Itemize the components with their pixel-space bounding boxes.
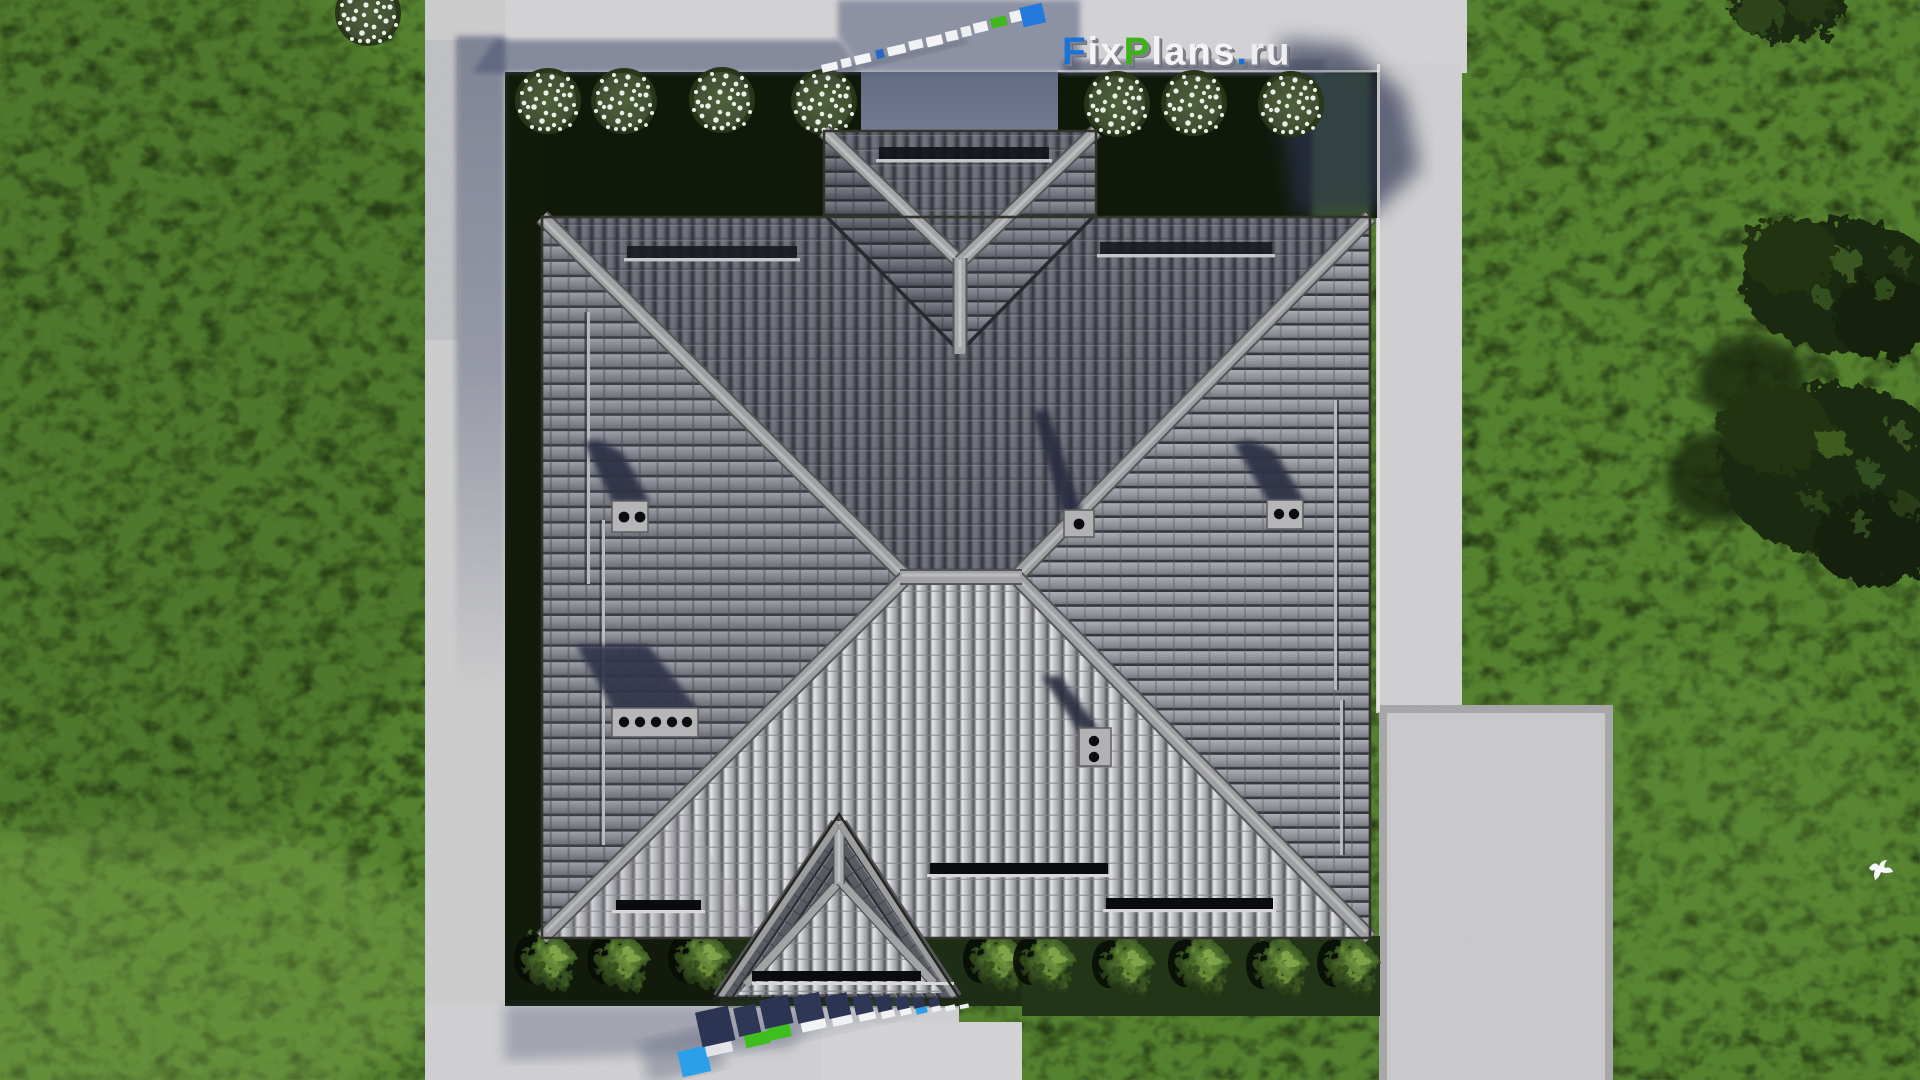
svg-text:FixPlans.ru: FixPlans.ru bbox=[1062, 31, 1292, 74]
